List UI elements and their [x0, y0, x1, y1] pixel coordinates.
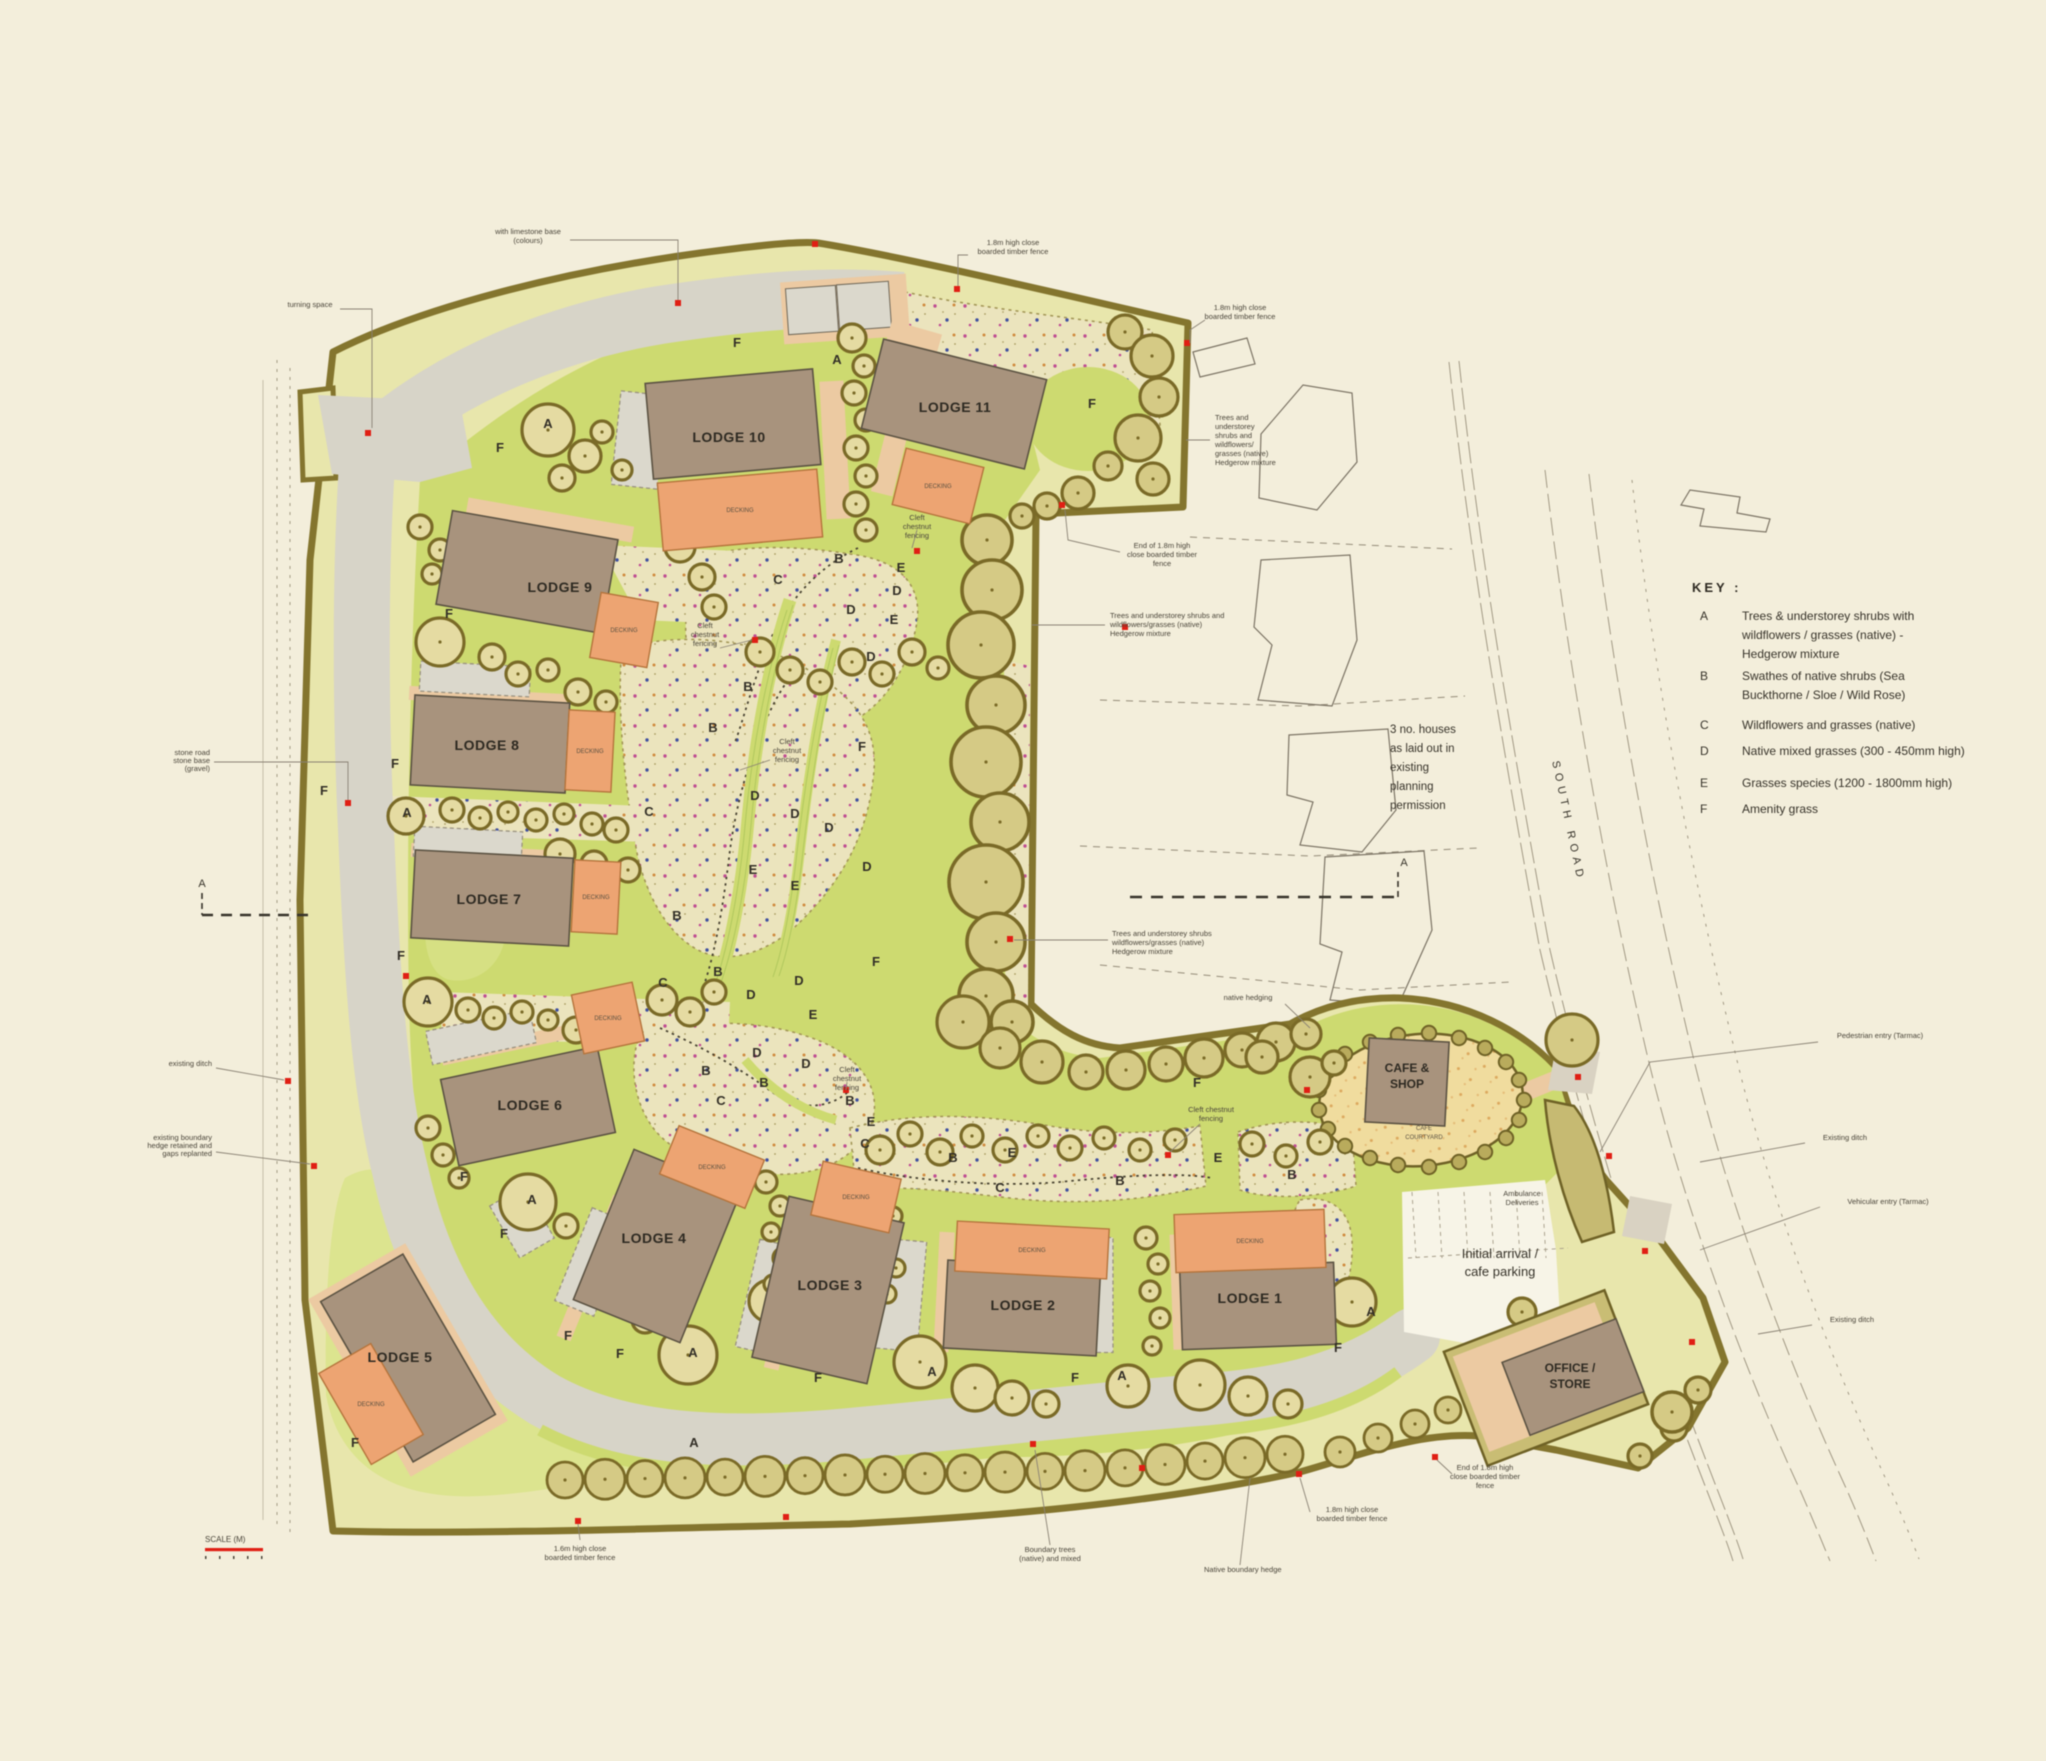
svg-text:D: D — [794, 973, 803, 988]
svg-text:F: F — [397, 948, 405, 963]
svg-text:Trees & understorey shrubs wit: Trees & understorey shrubs with — [1742, 609, 1914, 623]
svg-text:C: C — [860, 1136, 870, 1151]
svg-text:LODGE 6: LODGE 6 — [498, 1097, 563, 1113]
svg-text:Hedgerow mixture: Hedgerow mixture — [1112, 947, 1173, 956]
svg-text:A: A — [543, 416, 553, 431]
svg-text:Deliveries: Deliveries — [1506, 1198, 1539, 1207]
svg-text:wildflowers/: wildflowers/ — [1214, 440, 1255, 449]
svg-text:Hedgerow mixture: Hedgerow mixture — [1110, 629, 1171, 638]
svg-text:Cleft: Cleft — [909, 513, 925, 522]
svg-text:close boarded timber: close boarded timber — [1450, 1472, 1521, 1481]
svg-text:(colours): (colours) — [513, 236, 543, 245]
svg-text:F: F — [1193, 1075, 1201, 1090]
svg-text:wildflowers / grasses (native): wildflowers / grasses (native) - — [1741, 628, 1903, 642]
svg-text:A: A — [422, 992, 432, 1007]
svg-text:E: E — [1700, 776, 1708, 790]
svg-text:B: B — [1700, 669, 1708, 683]
svg-text:E: E — [809, 1007, 818, 1022]
svg-text:Hedgerow mixture: Hedgerow mixture — [1215, 458, 1276, 467]
svg-text:D: D — [892, 583, 901, 598]
svg-text:1.8m high close: 1.8m high close — [987, 238, 1040, 247]
svg-text:chestnut: chestnut — [833, 1074, 862, 1083]
svg-text:D: D — [801, 1056, 810, 1071]
svg-text:E: E — [897, 560, 906, 575]
svg-text:E: E — [749, 862, 758, 877]
svg-text:shrubs and: shrubs and — [1215, 431, 1252, 440]
svg-text:(gravel): (gravel) — [185, 764, 211, 773]
svg-text:as laid out in: as laid out in — [1390, 743, 1455, 755]
svg-text:A: A — [198, 878, 206, 890]
svg-text:planning: planning — [1390, 781, 1433, 793]
svg-text:Trees and understorey shrubs: Trees and understorey shrubs — [1112, 929, 1212, 938]
svg-text:DECKING: DECKING — [576, 749, 604, 755]
svg-text:B: B — [713, 964, 722, 979]
svg-text:Cleft chestnut: Cleft chestnut — [1188, 1105, 1235, 1114]
svg-text:STORE: STORE — [1549, 1377, 1590, 1391]
svg-text:SCALE (M): SCALE (M) — [205, 1535, 246, 1544]
svg-text:fence: fence — [1476, 1481, 1494, 1490]
svg-text:wildflowers/grasses (native): wildflowers/grasses (native) — [1111, 938, 1205, 947]
svg-text:Cleft: Cleft — [779, 737, 795, 746]
svg-text:End of 1.8m high: End of 1.8m high — [1457, 1463, 1514, 1472]
svg-text:DECKING: DECKING — [582, 895, 610, 901]
svg-text:C: C — [716, 1093, 726, 1108]
svg-text:A: A — [688, 1345, 698, 1360]
svg-text:D: D — [846, 602, 855, 617]
svg-text:C: C — [1700, 718, 1709, 732]
svg-text:D: D — [1700, 744, 1709, 758]
svg-text:permission: permission — [1390, 800, 1446, 812]
svg-text:C: C — [773, 572, 783, 587]
svg-text:F: F — [616, 1346, 624, 1361]
svg-text:D: D — [750, 788, 759, 803]
svg-text:LODGE 9: LODGE 9 — [528, 579, 593, 595]
svg-text:Cleft: Cleft — [839, 1065, 855, 1074]
svg-text:LODGE 5: LODGE 5 — [368, 1349, 433, 1365]
svg-text:Boundary trees: Boundary trees — [1025, 1545, 1076, 1554]
svg-text:wildflowers/grasses (native): wildflowers/grasses (native) — [1109, 620, 1203, 629]
svg-text:LODGE 1: LODGE 1 — [1218, 1290, 1283, 1306]
svg-text:A: A — [832, 352, 842, 367]
svg-text:C: C — [995, 1180, 1005, 1195]
svg-text:(native) and mixed: (native) and mixed — [1019, 1554, 1081, 1563]
svg-text:fencing: fencing — [905, 531, 929, 540]
svg-text:Native boundary hedge: Native boundary hedge — [1204, 1565, 1282, 1574]
svg-text:Hedgerow mixture: Hedgerow mixture — [1742, 647, 1840, 661]
svg-text:Existing ditch: Existing ditch — [1823, 1133, 1867, 1142]
svg-text:Pedestrian entry (Tarmac): Pedestrian entry (Tarmac) — [1837, 1031, 1924, 1040]
svg-text:DECKING: DECKING — [726, 508, 754, 514]
svg-text:COURTYARD: COURTYARD — [1405, 1135, 1443, 1141]
svg-text:Vehicular entry (Tarmac): Vehicular entry (Tarmac) — [1847, 1197, 1929, 1206]
svg-text:F: F — [460, 1169, 468, 1184]
svg-text:fence: fence — [1153, 559, 1171, 568]
svg-text:fencing: fencing — [693, 639, 717, 648]
svg-text:fencing: fencing — [1199, 1114, 1223, 1123]
svg-text:End of 1.8m high: End of 1.8m high — [1134, 541, 1191, 550]
svg-text:F: F — [1088, 396, 1096, 411]
svg-text:Trees and understorey shrubs a: Trees and understorey shrubs and — [1110, 611, 1224, 620]
svg-text:B: B — [845, 1093, 854, 1108]
svg-text:Native mixed grasses (300 - 45: Native mixed grasses (300 - 450mm high) — [1742, 744, 1965, 758]
svg-text:DECKING: DECKING — [357, 1402, 385, 1408]
svg-text:DECKING: DECKING — [1018, 1248, 1046, 1254]
svg-text:gaps replanted: gaps replanted — [162, 1149, 212, 1158]
svg-text:D: D — [862, 859, 871, 874]
svg-text:E: E — [791, 878, 800, 893]
svg-text:A: A — [927, 1364, 937, 1379]
svg-text:B: B — [701, 1063, 710, 1078]
svg-text:C: C — [644, 804, 654, 819]
svg-text:F: F — [496, 440, 504, 455]
svg-text:Cleft: Cleft — [697, 621, 713, 630]
svg-text:E: E — [1008, 1145, 1017, 1160]
svg-text:existing: existing — [1390, 762, 1429, 774]
svg-text:D: D — [752, 1045, 761, 1060]
svg-text:F: F — [858, 739, 866, 754]
svg-text:B: B — [1115, 1173, 1124, 1188]
svg-text:OFFICE /: OFFICE / — [1545, 1361, 1596, 1375]
svg-text:CAFE &: CAFE & — [1385, 1061, 1430, 1075]
svg-text:F: F — [445, 606, 453, 621]
svg-text:Amenity grass: Amenity grass — [1742, 802, 1818, 816]
svg-text:A: A — [1117, 1368, 1127, 1383]
svg-text:SHOP: SHOP — [1390, 1077, 1424, 1091]
svg-text:LODGE 4: LODGE 4 — [622, 1230, 687, 1246]
svg-text:F: F — [564, 1328, 572, 1343]
svg-text:LODGE 10: LODGE 10 — [692, 429, 765, 445]
svg-text:F: F — [1071, 1370, 1079, 1385]
svg-text:with limestone base: with limestone base — [494, 227, 561, 236]
svg-text:Trees and: Trees and — [1215, 413, 1249, 422]
svg-text:DECKING: DECKING — [594, 1016, 622, 1022]
svg-text:E: E — [867, 1114, 876, 1129]
svg-text:chestnut: chestnut — [691, 630, 720, 639]
svg-text:F: F — [391, 756, 399, 771]
svg-text:KEY :: KEY : — [1692, 580, 1741, 595]
svg-text:native hedging: native hedging — [1224, 993, 1273, 1002]
svg-text:grasses (native): grasses (native) — [1215, 449, 1269, 458]
svg-text:F: F — [733, 335, 741, 350]
svg-text:DECKING: DECKING — [610, 628, 638, 634]
svg-text:A: A — [1366, 1304, 1376, 1319]
svg-text:Buckthorne / Sloe / Wild Rose): Buckthorne / Sloe / Wild Rose) — [1742, 688, 1905, 702]
svg-text:cafe parking: cafe parking — [1465, 1264, 1536, 1279]
svg-text:D: D — [790, 806, 799, 821]
svg-text:B: B — [743, 679, 752, 694]
svg-text:boarded timber fence: boarded timber fence — [1205, 312, 1276, 321]
svg-text:LODGE 7: LODGE 7 — [457, 891, 522, 907]
svg-text:boarded timber fence: boarded timber fence — [1317, 1514, 1388, 1523]
svg-text:understorey: understorey — [1215, 422, 1255, 431]
svg-text:B: B — [948, 1150, 957, 1165]
svg-text:1.8m high close: 1.8m high close — [1326, 1505, 1379, 1514]
svg-text:Existing ditch: Existing ditch — [1830, 1315, 1874, 1324]
svg-text:F: F — [500, 1226, 508, 1241]
svg-text:CAFE: CAFE — [1416, 1126, 1432, 1132]
svg-text:chestnut: chestnut — [773, 746, 802, 755]
svg-text:B: B — [1287, 1167, 1296, 1182]
svg-text:Swathes of native shrubs (Sea: Swathes of native shrubs (Sea — [1742, 669, 1905, 683]
svg-text:A: A — [402, 805, 412, 820]
svg-text:existing ditch: existing ditch — [169, 1059, 212, 1068]
svg-text:D: D — [866, 649, 875, 664]
svg-text:B: B — [708, 720, 717, 735]
svg-text:C: C — [658, 975, 668, 990]
svg-text:LODGE 3: LODGE 3 — [798, 1277, 863, 1293]
svg-text:DECKING: DECKING — [1236, 1239, 1264, 1245]
svg-text:chestnut: chestnut — [903, 522, 932, 531]
svg-text:Initial arrival /: Initial arrival / — [1462, 1246, 1539, 1261]
svg-text:boarded timber fence: boarded timber fence — [545, 1553, 616, 1562]
svg-text:Ambulance: Ambulance — [1503, 1189, 1541, 1198]
svg-text:B: B — [834, 551, 843, 566]
svg-text:A: A — [527, 1192, 537, 1207]
svg-text:LODGE 8: LODGE 8 — [455, 737, 520, 753]
svg-text:D: D — [824, 820, 833, 835]
svg-text:A: A — [1400, 857, 1408, 869]
svg-text:E: E — [1214, 1150, 1223, 1165]
svg-text:fencing: fencing — [775, 755, 799, 764]
svg-text:B: B — [672, 908, 681, 923]
svg-text:D: D — [746, 987, 755, 1002]
svg-text:F: F — [320, 783, 328, 798]
svg-text:B: B — [759, 1075, 768, 1090]
svg-text:A: A — [1700, 609, 1708, 623]
svg-text:DECKING: DECKING — [842, 1195, 870, 1201]
svg-text:F: F — [814, 1370, 822, 1385]
svg-text:DECKING: DECKING — [698, 1165, 726, 1171]
svg-text:Grasses species (1200 - 1800mm: Grasses species (1200 - 1800mm high) — [1742, 776, 1952, 790]
svg-text:close boarded timber: close boarded timber — [1127, 550, 1198, 559]
svg-text:E: E — [890, 612, 899, 627]
svg-text:turning space: turning space — [287, 300, 332, 309]
svg-text:boarded timber fence: boarded timber fence — [978, 247, 1049, 256]
svg-text:F: F — [1700, 802, 1707, 816]
svg-text:DECKING: DECKING — [924, 484, 952, 490]
svg-text:1.8m high close: 1.8m high close — [1214, 303, 1267, 312]
svg-text:F: F — [1334, 1340, 1342, 1355]
svg-text:Wildflowers and grasses (nativ: Wildflowers and grasses (native) — [1742, 718, 1915, 732]
svg-text:3 no. houses: 3 no. houses — [1390, 724, 1456, 736]
svg-text:F: F — [872, 954, 880, 969]
svg-text:LODGE 2: LODGE 2 — [991, 1297, 1056, 1313]
svg-text:1.6m high close: 1.6m high close — [554, 1544, 607, 1553]
svg-text:LODGE 11: LODGE 11 — [919, 399, 991, 415]
svg-text:A: A — [689, 1435, 699, 1450]
svg-text:F: F — [351, 1435, 359, 1450]
